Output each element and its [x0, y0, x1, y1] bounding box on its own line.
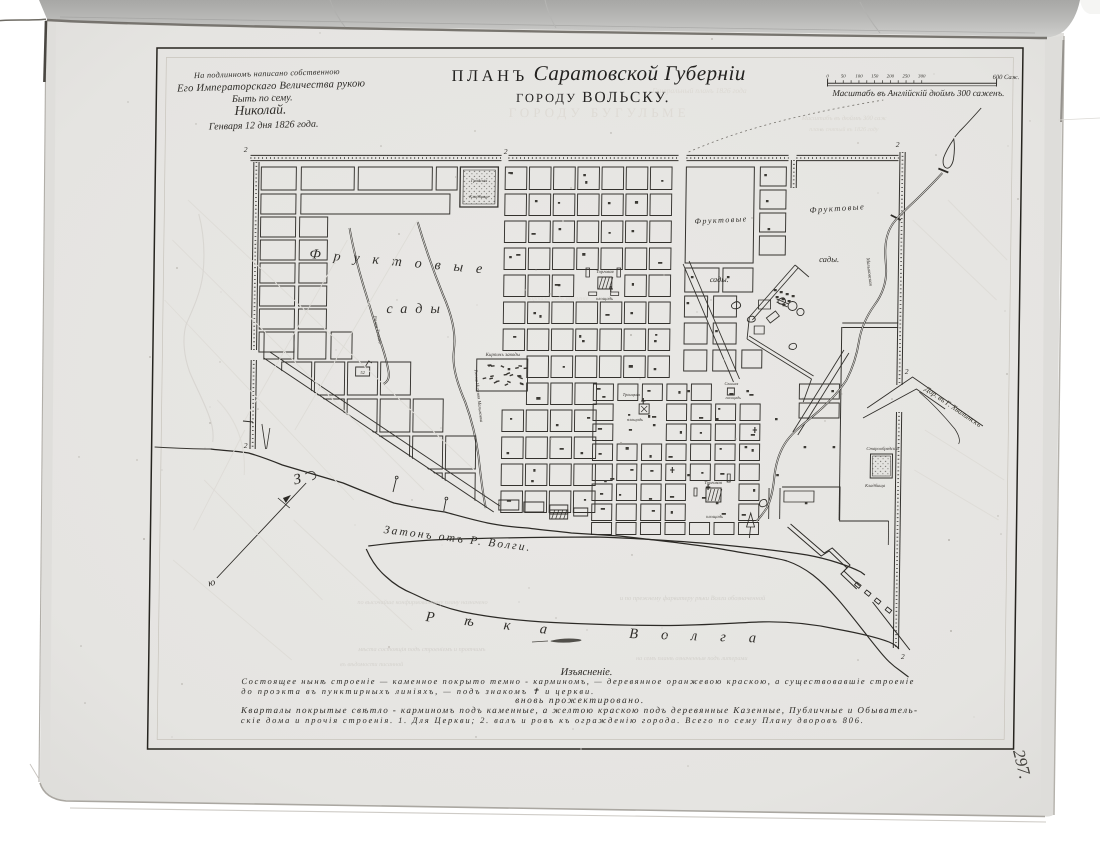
svg-text:50: 50 — [841, 75, 846, 80]
svg-text:ГОРОДУ ВОЛЬСКУ.: ГОРОДУ ВОЛЬСКУ. — [516, 89, 671, 106]
svg-text:на семъ планѣ означенныя подъ: на семъ планѣ означенныя подъ литерами — [636, 655, 748, 662]
svg-text:Масштабъ въ Англійскій дюймъ 3: Масштабъ въ Англійскій дюймъ 300 саженъ. — [831, 88, 1004, 98]
svg-text:площадь: площадь — [726, 395, 742, 400]
svg-text:сады: сады — [386, 302, 448, 317]
svg-text:площадь: площадь — [627, 417, 643, 422]
svg-text:Кладбища: Кладбища — [468, 194, 489, 199]
svg-text:Сѣнная: Сѣнная — [725, 381, 739, 386]
svg-text:2: 2 — [244, 441, 248, 450]
svg-text:150: 150 — [871, 75, 879, 80]
svg-text:Николай.: Николай. — [234, 102, 287, 118]
svg-text:ПЛАНЪ: ПЛАНЪ — [451, 66, 527, 85]
svg-text:Старообрядскій: Старообрядскій — [866, 446, 899, 451]
svg-text:2: 2 — [504, 147, 508, 156]
svg-text:кварталы подъ заселеніе: кварталы подъ заселеніе — [525, 295, 589, 302]
svg-text:въ вѣдомости писанной: въ вѣдомости писанной — [340, 661, 404, 668]
svg-text:площадь: площадь — [706, 514, 723, 519]
svg-text:Градскія: Градскія — [470, 178, 487, 183]
svg-text:Троицкая: Троицкая — [623, 392, 640, 397]
svg-text:2: 2 — [244, 145, 248, 154]
svg-text:600 Саж.: 600 Саж. — [993, 74, 1020, 81]
svg-text:Саратовской Губерніи: Саратовской Губерніи — [534, 61, 747, 85]
svg-text:Генеральный планъ 1826 года: Генеральный планъ 1826 года — [651, 86, 747, 95]
svg-text:Торговая: Торговая — [596, 269, 614, 274]
svg-text:2: 2 — [896, 140, 900, 149]
svg-text:и по прежнему фарватеру рѣки В: и по прежнему фарватеру рѣки Волги обозн… — [620, 595, 766, 602]
svg-text:2: 2 — [905, 367, 909, 376]
svg-text:300: 300 — [918, 75, 926, 80]
svg-text:200: 200 — [887, 75, 895, 80]
svg-text:мѣста состоящія подъ строеніем: мѣста состоящія подъ строеніемъ и протчи… — [357, 646, 486, 653]
svg-text:2: 2 — [901, 652, 905, 661]
svg-text:Торговая: Торговая — [704, 480, 722, 485]
svg-text:Кварталы покрытые свѣтло - кар: Кварталы покрытые свѣтло - карминомъ под… — [240, 705, 917, 715]
svg-text:планъ снятый въ 1826 году: планъ снятый въ 1826 году — [809, 126, 879, 133]
svg-text:Масштабъ въ дюймѣ 300 саж: Масштабъ въ дюймѣ 300 саж — [801, 115, 887, 122]
svg-text:по высочайше конфирмованному п: по высочайше конфирмованному плану назна… — [357, 599, 487, 606]
svg-text:Кладбища: Кладбища — [864, 483, 886, 488]
svg-text:Кирпичъ заводы: Кирпичъ заводы — [485, 353, 521, 358]
svg-text:скіе дома и прочія строенія.: скіе дома и прочія строенія. 1. Для Церк… — [241, 716, 863, 725]
svg-text:ГОРОДУ БУГУЛЬМЕ: ГОРОДУ БУГУЛЬМЕ — [509, 105, 690, 120]
svg-text:сады.: сады. — [819, 254, 839, 264]
svg-text:площадь: площадь — [596, 296, 613, 301]
svg-text:250: 250 — [902, 75, 910, 80]
svg-text:100: 100 — [855, 75, 863, 80]
